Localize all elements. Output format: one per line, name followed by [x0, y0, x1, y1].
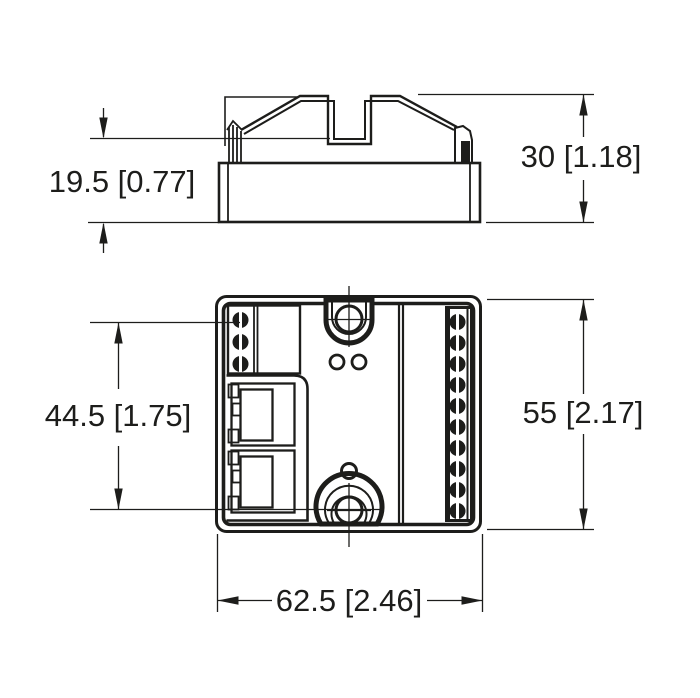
terminal-block-left — [228, 306, 300, 374]
rj45-port-1 — [229, 384, 295, 446]
technical-drawing-canvas: 19.5 [0.77] 30 [1.18] 44.5 [1.75] 55 [2.… — [0, 0, 700, 698]
dim-body-height: 55 [2.17] — [487, 300, 643, 530]
left-latch — [227, 121, 242, 163]
dim-upper-section-height: 19.5 [0.77] — [49, 108, 330, 253]
drawing-page: 19.5 [0.77] 30 [1.18] 44.5 [1.75] 55 [2.… — [0, 0, 700, 698]
side-view — [219, 96, 480, 222]
led-indicators — [330, 355, 366, 369]
right-latch — [455, 126, 472, 163]
front-view — [217, 286, 481, 547]
panel-divider — [399, 305, 403, 523]
dim-body-width: 62.5 [2.46] — [218, 534, 483, 618]
terminal-block-right — [445, 307, 473, 521]
dim-label-total-height-side: 30 [1.18] — [521, 139, 642, 174]
housing-top — [241, 96, 457, 144]
led-1 — [330, 355, 344, 369]
dim-label-connector-span: 44.5 [1.75] — [45, 398, 192, 433]
dim-label-upper-section-height: 19.5 [0.77] — [49, 164, 196, 199]
housing-base — [219, 163, 480, 222]
dim-label-body-height: 55 [2.17] — [523, 395, 644, 430]
led-2 — [352, 355, 366, 369]
screw-terminal — [450, 314, 466, 519]
rj45-port-2 — [229, 451, 295, 513]
dim-total-height-side: 30 [1.18] — [418, 95, 641, 223]
dim-label-body-width: 62.5 [2.46] — [276, 583, 423, 618]
screw-terminal — [233, 312, 249, 372]
rj45-housing — [227, 376, 308, 521]
